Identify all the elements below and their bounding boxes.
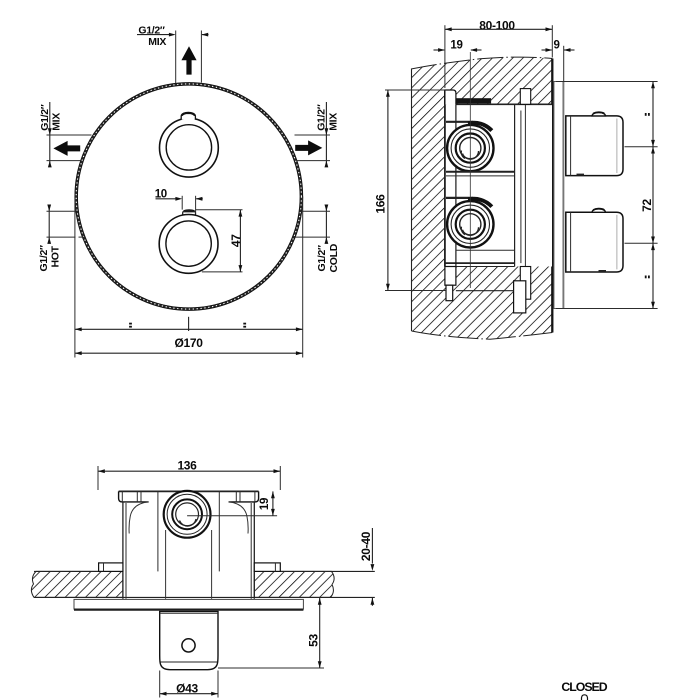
svg-text:53: 53 (306, 634, 320, 647)
svg-text:G1/2″: G1/2″ (316, 245, 328, 272)
svg-text:G1/2″: G1/2″ (39, 104, 51, 131)
svg-text:COLD: COLD (328, 243, 340, 272)
svg-text:72: 72 (640, 199, 654, 212)
svg-text:19: 19 (450, 40, 462, 52)
svg-text:MIX: MIX (51, 113, 63, 131)
svg-text:MIX: MIX (148, 36, 166, 48)
svg-text:HOT: HOT (49, 245, 61, 267)
svg-text:166: 166 (374, 194, 388, 214)
svg-text:9: 9 (553, 40, 559, 52)
svg-text:G1/2″: G1/2″ (316, 104, 328, 131)
svg-text:CLOSED: CLOSED (561, 680, 607, 694)
svg-text:Ø170: Ø170 (175, 336, 204, 350)
svg-text:80-100: 80-100 (479, 19, 515, 33)
svg-text:136: 136 (177, 458, 197, 472)
svg-text:19: 19 (259, 498, 271, 510)
svg-text:G1/2″: G1/2″ (38, 245, 50, 272)
svg-text:MIX: MIX (328, 113, 340, 131)
svg-text:20-40: 20-40 (359, 531, 373, 561)
